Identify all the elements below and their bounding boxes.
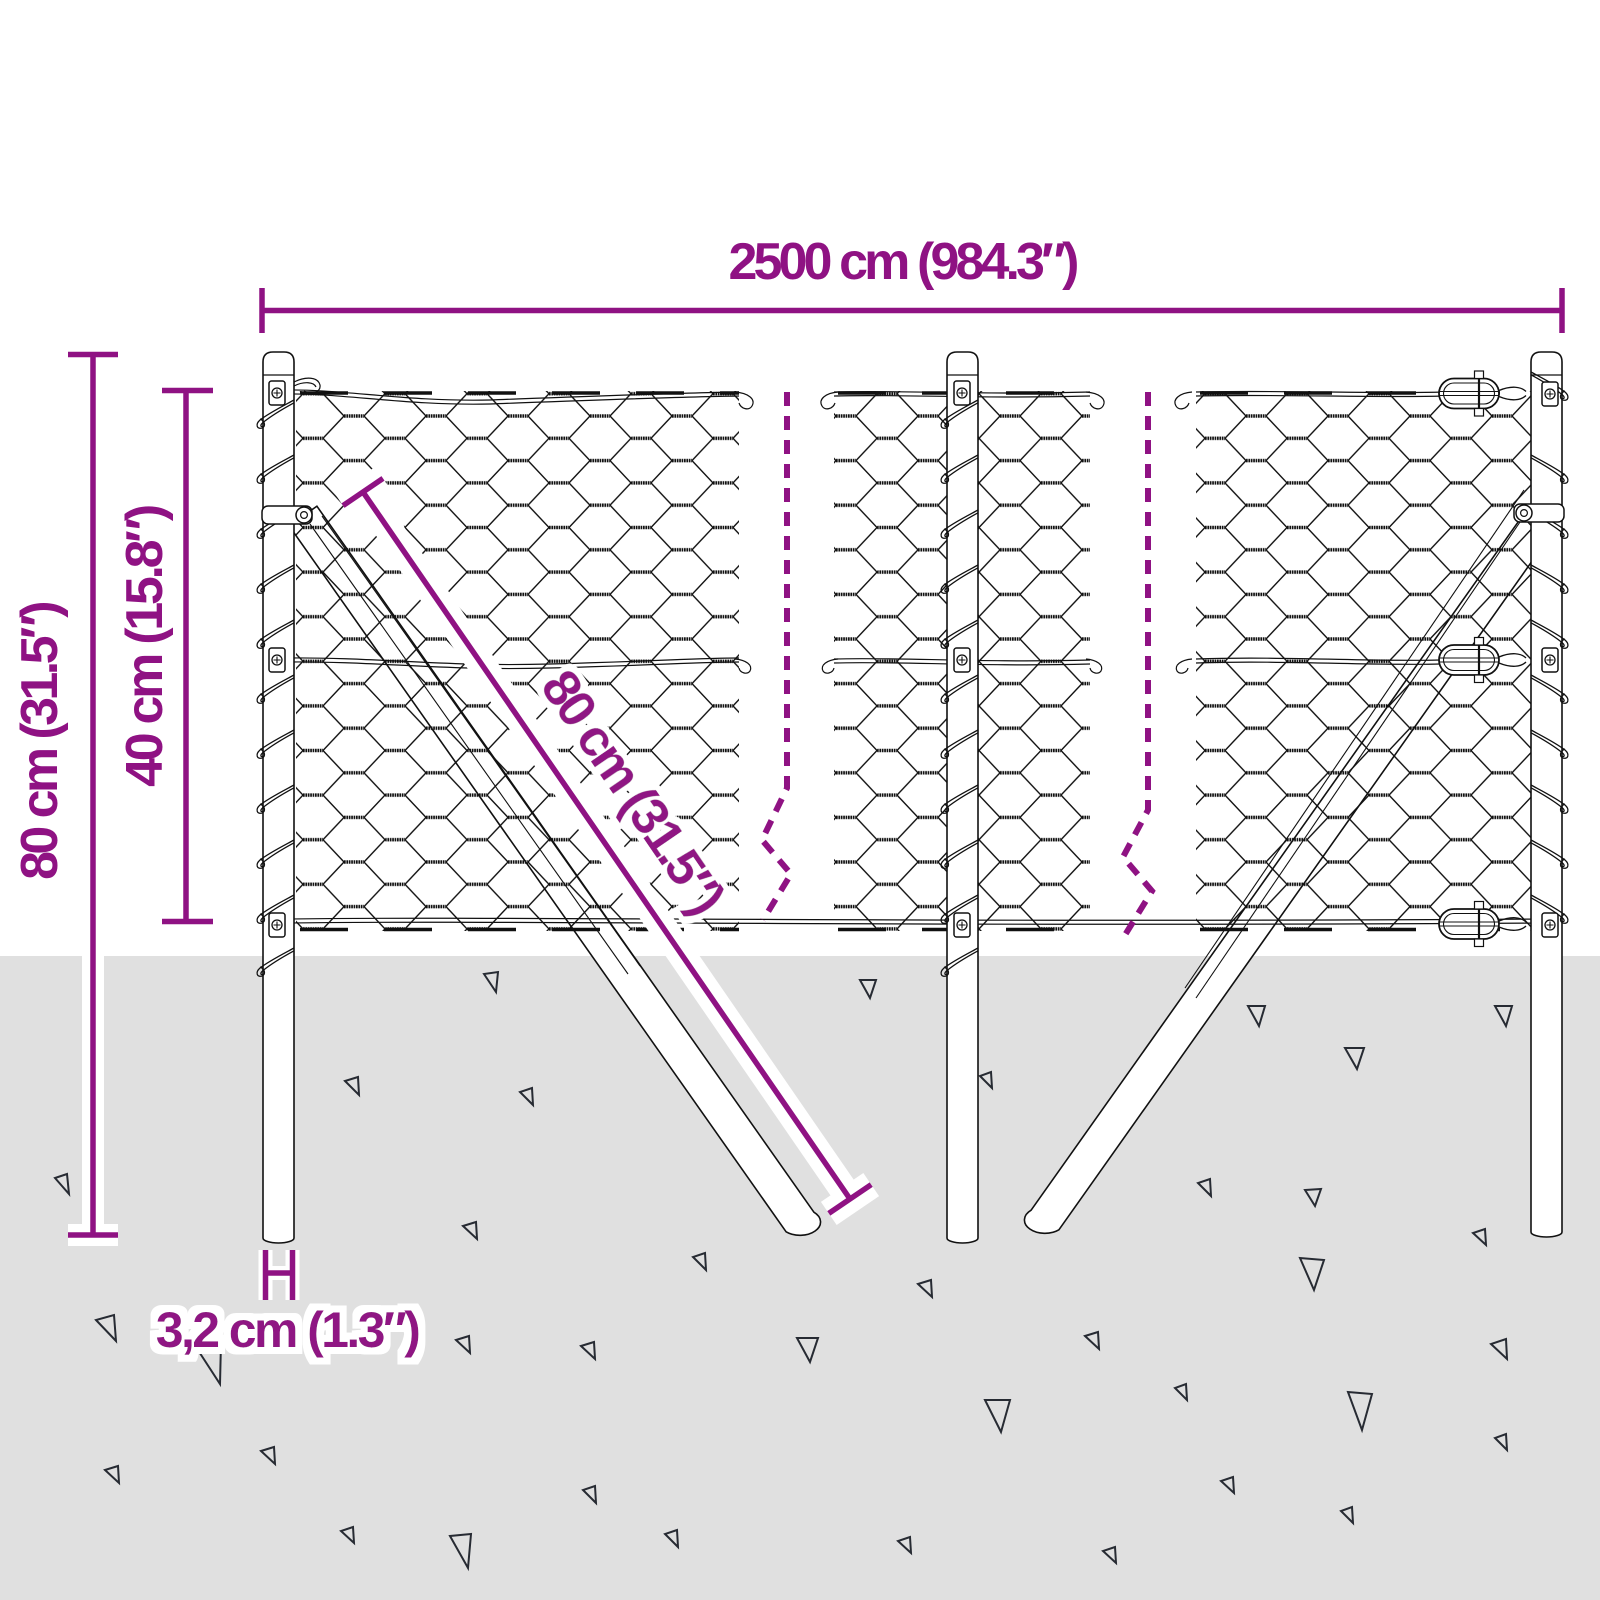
svg-text:3,2 cm (1.3″): 3,2 cm (1.3″): [156, 1302, 419, 1358]
svg-text:2500 cm (984.3″): 2500 cm (984.3″): [729, 233, 1078, 291]
svg-text:80 cm (31.5″): 80 cm (31.5″): [11, 603, 69, 880]
svg-text:40 cm (15.8″): 40 cm (15.8″): [116, 506, 174, 787]
